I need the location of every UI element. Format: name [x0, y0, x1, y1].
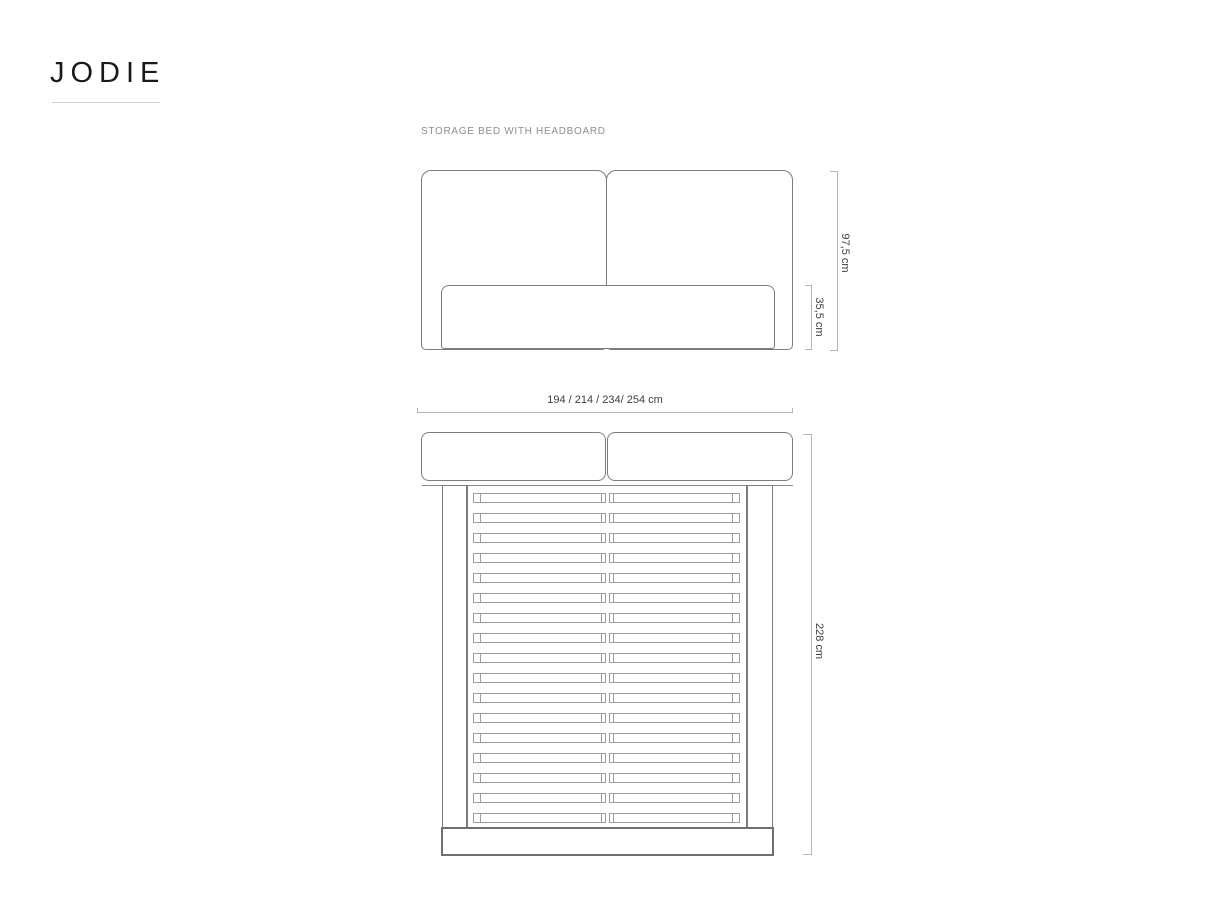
slat-cap-line	[480, 714, 481, 722]
top-headboard-right-panel	[607, 432, 793, 481]
slat-cap-line	[480, 494, 481, 502]
dimension-line-width	[417, 408, 793, 413]
slat-cap-line	[601, 714, 602, 722]
slat-row	[468, 673, 746, 683]
slat-left-half	[473, 533, 606, 543]
slat-left-half	[473, 673, 606, 683]
slat-row	[468, 493, 746, 503]
slat-cap-line	[613, 774, 614, 782]
slat-cap-line	[601, 534, 602, 542]
top-frame-right-rail	[747, 485, 773, 828]
slat-cap-line	[732, 754, 733, 762]
slat-row	[468, 713, 746, 723]
dimension-label-headboard-height: 97,5 cm	[839, 223, 851, 283]
dimension-line-length	[803, 434, 812, 855]
slat-cap-line	[601, 594, 602, 602]
slat-left-half	[473, 573, 606, 583]
slat-right-half	[609, 593, 740, 603]
slat-cap-line	[601, 514, 602, 522]
slat-left-half	[473, 753, 606, 763]
slat-left-half	[473, 513, 606, 523]
slat-cap-line	[732, 734, 733, 742]
slat-cap-line	[732, 494, 733, 502]
slat-right-half	[609, 753, 740, 763]
slat-right-half	[609, 713, 740, 723]
slat-cap-line	[613, 714, 614, 722]
slat-cap-line	[732, 534, 733, 542]
front-bed-base	[441, 285, 775, 349]
slat-cap-line	[732, 674, 733, 682]
dimension-line-base-height	[805, 285, 812, 350]
slat-right-half	[609, 733, 740, 743]
slat-left-half	[473, 793, 606, 803]
slat-cap-line	[480, 534, 481, 542]
slat-cap-line	[601, 674, 602, 682]
slat-cap-line	[601, 574, 602, 582]
slat-right-half	[609, 493, 740, 503]
slat-cap-line	[613, 594, 614, 602]
slat-cap-line	[613, 634, 614, 642]
slat-cap-line	[480, 694, 481, 702]
slat-row	[468, 773, 746, 783]
slat-area	[467, 485, 747, 827]
slat-cap-line	[732, 714, 733, 722]
brand-logo-underline	[52, 102, 160, 103]
slat-right-half	[609, 533, 740, 543]
slat-left-half	[473, 613, 606, 623]
product-subtitle: STORAGE BED WITH HEADBOARD	[421, 126, 606, 137]
slat-right-half	[609, 573, 740, 583]
slat-cap-line	[480, 754, 481, 762]
slat-row	[468, 613, 746, 623]
slat-cap-line	[732, 654, 733, 662]
dimension-label-width: 194 / 214 / 234/ 254 cm	[417, 394, 793, 406]
top-frame-left-rail	[442, 485, 467, 828]
slat-left-half	[473, 593, 606, 603]
slat-cap-line	[732, 694, 733, 702]
slat-cap-line	[732, 554, 733, 562]
slat-cap-line	[732, 814, 733, 822]
slat-cap-line	[732, 634, 733, 642]
slat-right-half	[609, 633, 740, 643]
slat-cap-line	[601, 754, 602, 762]
slat-row	[468, 753, 746, 763]
slat-row	[468, 633, 746, 643]
slat-left-half	[473, 733, 606, 743]
slat-cap-line	[480, 634, 481, 642]
slat-cap-line	[601, 614, 602, 622]
slat-cap-line	[732, 514, 733, 522]
slat-left-half	[473, 633, 606, 643]
slat-left-half	[473, 813, 606, 823]
slat-cap-line	[613, 814, 614, 822]
slat-right-half	[609, 773, 740, 783]
slat-right-half	[609, 653, 740, 663]
slat-cap-line	[480, 574, 481, 582]
slat-left-half	[473, 713, 606, 723]
slat-cap-line	[480, 614, 481, 622]
slat-cap-line	[613, 614, 614, 622]
slat-cap-line	[480, 594, 481, 602]
slat-right-half	[609, 673, 740, 683]
slat-cap-line	[613, 514, 614, 522]
slat-cap-line	[613, 694, 614, 702]
slat-row	[468, 593, 746, 603]
slat-cap-line	[480, 654, 481, 662]
slat-cap-line	[732, 594, 733, 602]
slat-cap-line	[732, 774, 733, 782]
slat-cap-line	[601, 654, 602, 662]
slat-right-half	[609, 613, 740, 623]
slat-row	[468, 553, 746, 563]
slat-cap-line	[480, 734, 481, 742]
slat-cap-line	[732, 794, 733, 802]
slat-right-half	[609, 513, 740, 523]
slat-cap-line	[601, 774, 602, 782]
slat-cap-line	[480, 674, 481, 682]
slat-cap-line	[601, 494, 602, 502]
slat-left-half	[473, 493, 606, 503]
slat-row	[468, 813, 746, 823]
slat-cap-line	[601, 814, 602, 822]
slat-row	[468, 573, 746, 583]
slat-cap-line	[601, 634, 602, 642]
slat-row	[468, 653, 746, 663]
slat-right-half	[609, 693, 740, 703]
diagram-page: JODIE STORAGE BED WITH HEADBOARD 97,5 cm…	[0, 0, 1214, 911]
slat-cap-line	[613, 734, 614, 742]
slat-row	[468, 793, 746, 803]
slat-left-half	[473, 653, 606, 663]
slat-cap-line	[732, 614, 733, 622]
slat-cap-line	[601, 554, 602, 562]
slat-cap-line	[613, 794, 614, 802]
brand-logo: JODIE	[50, 57, 165, 90]
dimension-label-base-height: 35,5 cm	[813, 287, 825, 347]
slat-cap-line	[601, 794, 602, 802]
slat-cap-line	[480, 774, 481, 782]
slat-left-half	[473, 773, 606, 783]
top-frame-footer	[441, 827, 774, 856]
slat-cap-line	[613, 494, 614, 502]
dimension-line-headboard-height	[830, 171, 838, 351]
top-headboard-left-panel	[421, 432, 606, 481]
slat-row	[468, 533, 746, 543]
slat-right-half	[609, 793, 740, 803]
slat-cap-line	[480, 814, 481, 822]
slat-cap-line	[732, 574, 733, 582]
slat-row	[468, 693, 746, 703]
slat-cap-line	[613, 654, 614, 662]
slat-left-half	[473, 693, 606, 703]
slat-right-half	[609, 553, 740, 563]
slat-right-half	[609, 813, 740, 823]
slat-row	[468, 513, 746, 523]
slat-cap-line	[613, 554, 614, 562]
slat-cap-line	[480, 554, 481, 562]
slat-cap-line	[601, 734, 602, 742]
slat-cap-line	[613, 574, 614, 582]
slat-cap-line	[480, 794, 481, 802]
dimension-label-length: 228 cm	[813, 611, 825, 671]
slat-cap-line	[613, 674, 614, 682]
slat-row	[468, 733, 746, 743]
slat-left-half	[473, 553, 606, 563]
slat-cap-line	[613, 754, 614, 762]
slat-cap-line	[601, 694, 602, 702]
slat-cap-line	[480, 514, 481, 522]
slat-cap-line	[613, 534, 614, 542]
